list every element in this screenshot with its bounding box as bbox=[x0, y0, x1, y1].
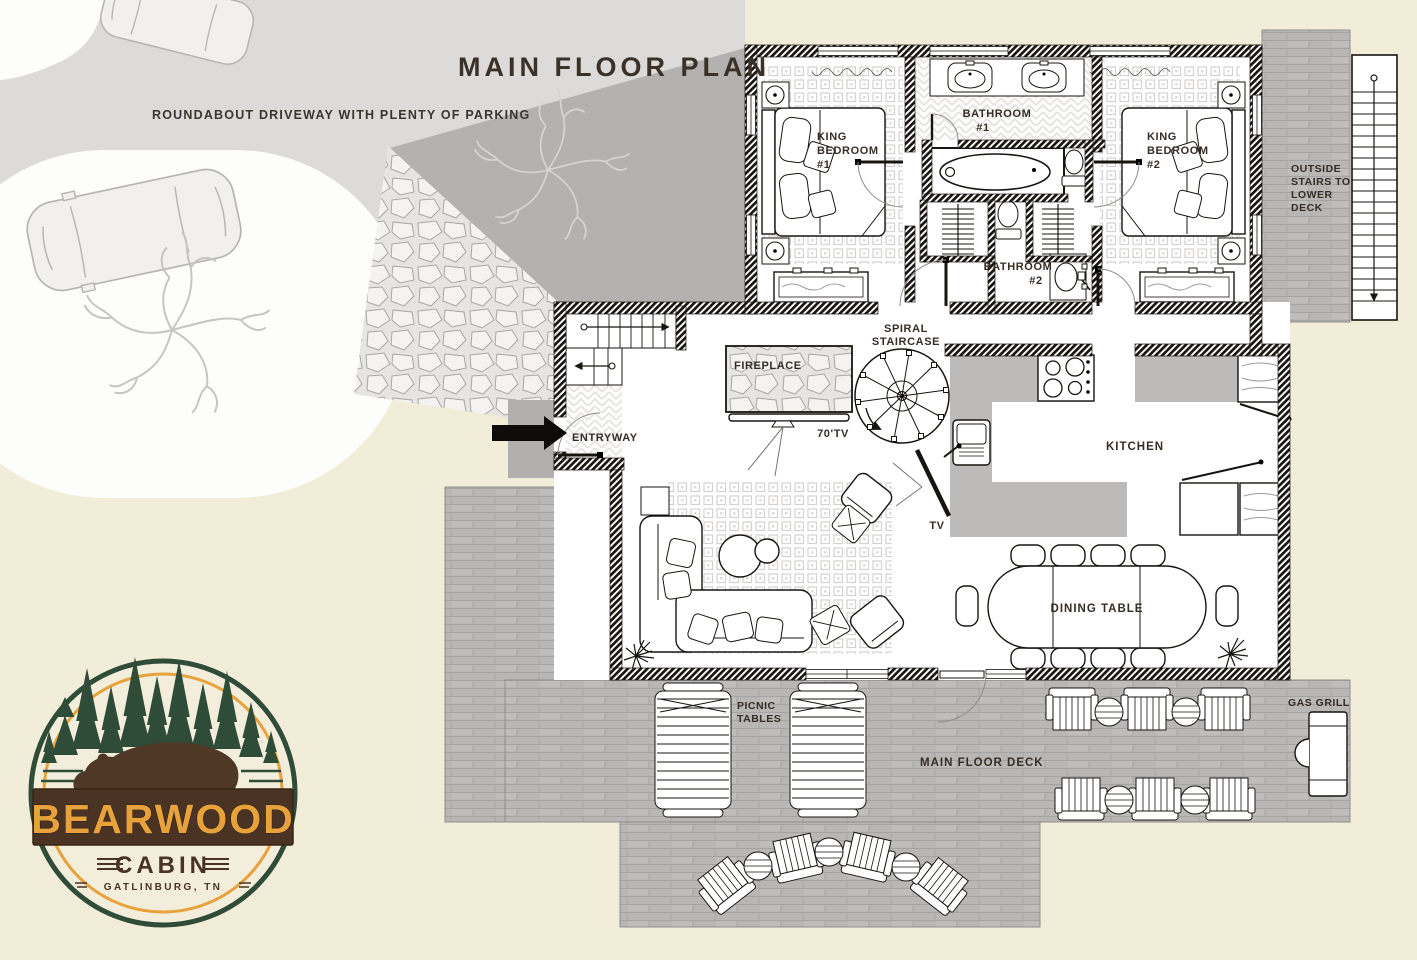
dining-table-label: DINING TABLE bbox=[1051, 603, 1144, 615]
outside-stairs-label: DECK bbox=[1291, 202, 1323, 214]
bathroom2-label: #2 bbox=[1029, 275, 1042, 287]
dresser-1 bbox=[774, 268, 868, 302]
picnic-tables-label: PICNIC bbox=[737, 700, 776, 712]
picnic-tables-label: TABLES bbox=[737, 713, 781, 725]
page-title: MAIN FLOOR PLAN bbox=[458, 52, 770, 82]
entry-floor bbox=[566, 383, 622, 470]
dresser-2 bbox=[1140, 268, 1234, 302]
picnic-table-2 bbox=[790, 683, 866, 817]
picnic-table-1 bbox=[655, 683, 731, 817]
bedroom1-label: KING bbox=[817, 131, 847, 143]
bedroom1-label: #1 bbox=[817, 159, 830, 171]
bearwood-cabin-logo: BEARWOOD CABIN GATLINBURG, TN bbox=[31, 657, 295, 925]
spiral-staircase-label: SPIRAL bbox=[884, 323, 928, 335]
bedroom2-label: BEDROOM bbox=[1147, 145, 1209, 157]
floor-plan-page: MAIN FLOOR PLAN ROUNDABOUT DRIVEWAY WITH… bbox=[0, 0, 1417, 960]
stove bbox=[1038, 355, 1094, 401]
spiral-staircase bbox=[855, 349, 949, 443]
logo-banner: BEARWOOD bbox=[31, 789, 295, 845]
kitchen-label: KITCHEN bbox=[1106, 441, 1164, 453]
outside-stairs-label: LOWER bbox=[1291, 189, 1333, 201]
deck-chairs-row2 bbox=[1055, 778, 1255, 820]
bathroom2-label: BATHROOM bbox=[984, 261, 1053, 273]
coffee-table bbox=[719, 535, 761, 577]
entryway-label: ENTRYWAY bbox=[572, 432, 638, 444]
tv-label: TV bbox=[929, 520, 944, 532]
tv-70inch bbox=[729, 414, 849, 421]
outside-stairs-label: OUTSIDE bbox=[1291, 163, 1341, 175]
logo-location: GATLINBURG, TN bbox=[104, 882, 222, 893]
bedroom2-label: #2 bbox=[1147, 159, 1160, 171]
logo-subtitle: CABIN bbox=[115, 852, 211, 879]
driveway-note: ROUNDABOUT DRIVEWAY WITH PLENTY OF PARKI… bbox=[152, 108, 530, 122]
lower-fridge bbox=[1240, 483, 1282, 535]
outside-stairs bbox=[1352, 55, 1397, 320]
floor-plan-svg: MAIN FLOOR PLAN ROUNDABOUT DRIVEWAY WITH… bbox=[0, 0, 1417, 960]
outside-stairs-label: STAIRS TO bbox=[1291, 176, 1351, 188]
main-floor-deck-label: MAIN FLOOR DECK bbox=[920, 757, 1044, 769]
bedroom1-label: BEDROOM bbox=[817, 145, 879, 157]
bedroom2-label: KING bbox=[1147, 131, 1177, 143]
bathroom1-label: BATHROOM bbox=[963, 108, 1032, 120]
bathtub-room bbox=[928, 148, 1064, 196]
tv-70-label: 70'TV bbox=[817, 428, 849, 440]
bathroom1-label: #1 bbox=[976, 122, 989, 134]
gas-grill-label: GAS GRILL bbox=[1288, 697, 1350, 709]
deck-chairs-row1 bbox=[1046, 688, 1250, 730]
fireplace-label: FIREPLACE bbox=[734, 360, 802, 372]
coffee-table-small bbox=[755, 539, 779, 563]
logo-name: BEARWOOD bbox=[31, 796, 295, 842]
spiral-staircase-label: STAIRCASE bbox=[872, 336, 940, 348]
side-table bbox=[641, 487, 669, 515]
